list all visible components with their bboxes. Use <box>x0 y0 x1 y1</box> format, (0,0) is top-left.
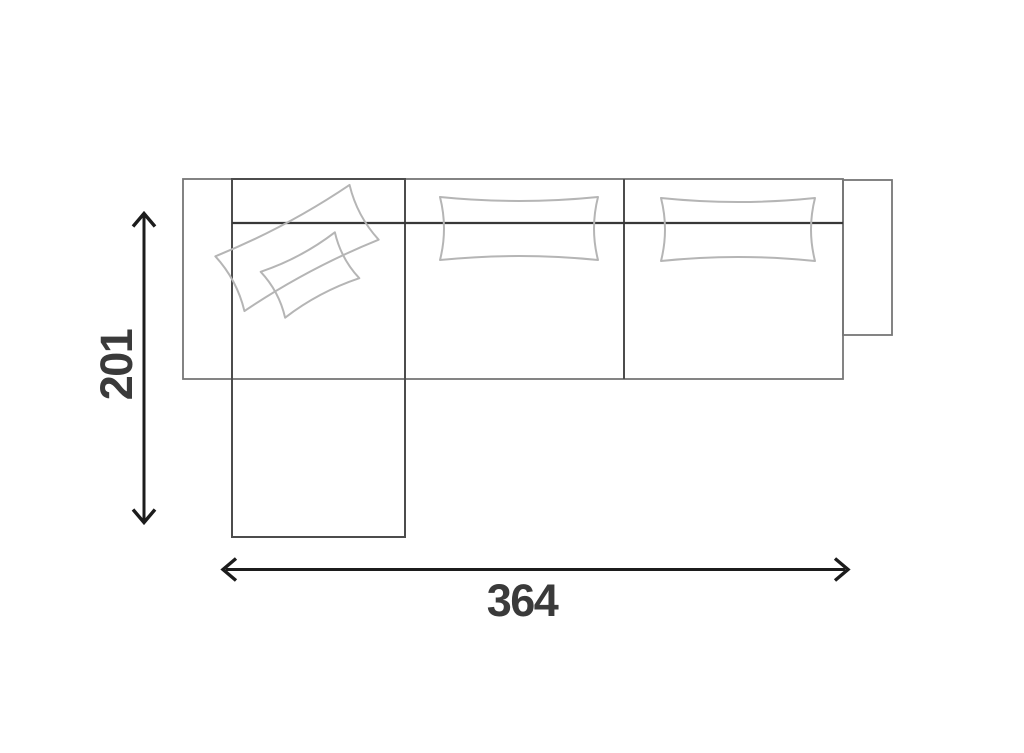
chaise-pillow-small <box>261 232 360 317</box>
width-dimension-label: 364 <box>487 575 559 626</box>
sofa-structure <box>183 179 892 537</box>
width-dimension: 364 <box>223 559 848 627</box>
sofa-plan-diagram: 201 364 <box>0 0 1024 753</box>
pillows <box>215 185 815 318</box>
chaise-pillow-large <box>215 185 378 311</box>
height-dimension-label: 201 <box>91 329 142 400</box>
right-armrest-outline <box>843 180 892 335</box>
sofa-body-outline <box>183 179 843 379</box>
right-seat-pillow <box>661 198 815 261</box>
chaise-section-outline <box>232 179 405 537</box>
sofa-plan-page: 201 364 <box>0 0 1024 753</box>
middle-seat-pillow <box>440 197 598 260</box>
height-dimension: 201 <box>91 214 155 523</box>
